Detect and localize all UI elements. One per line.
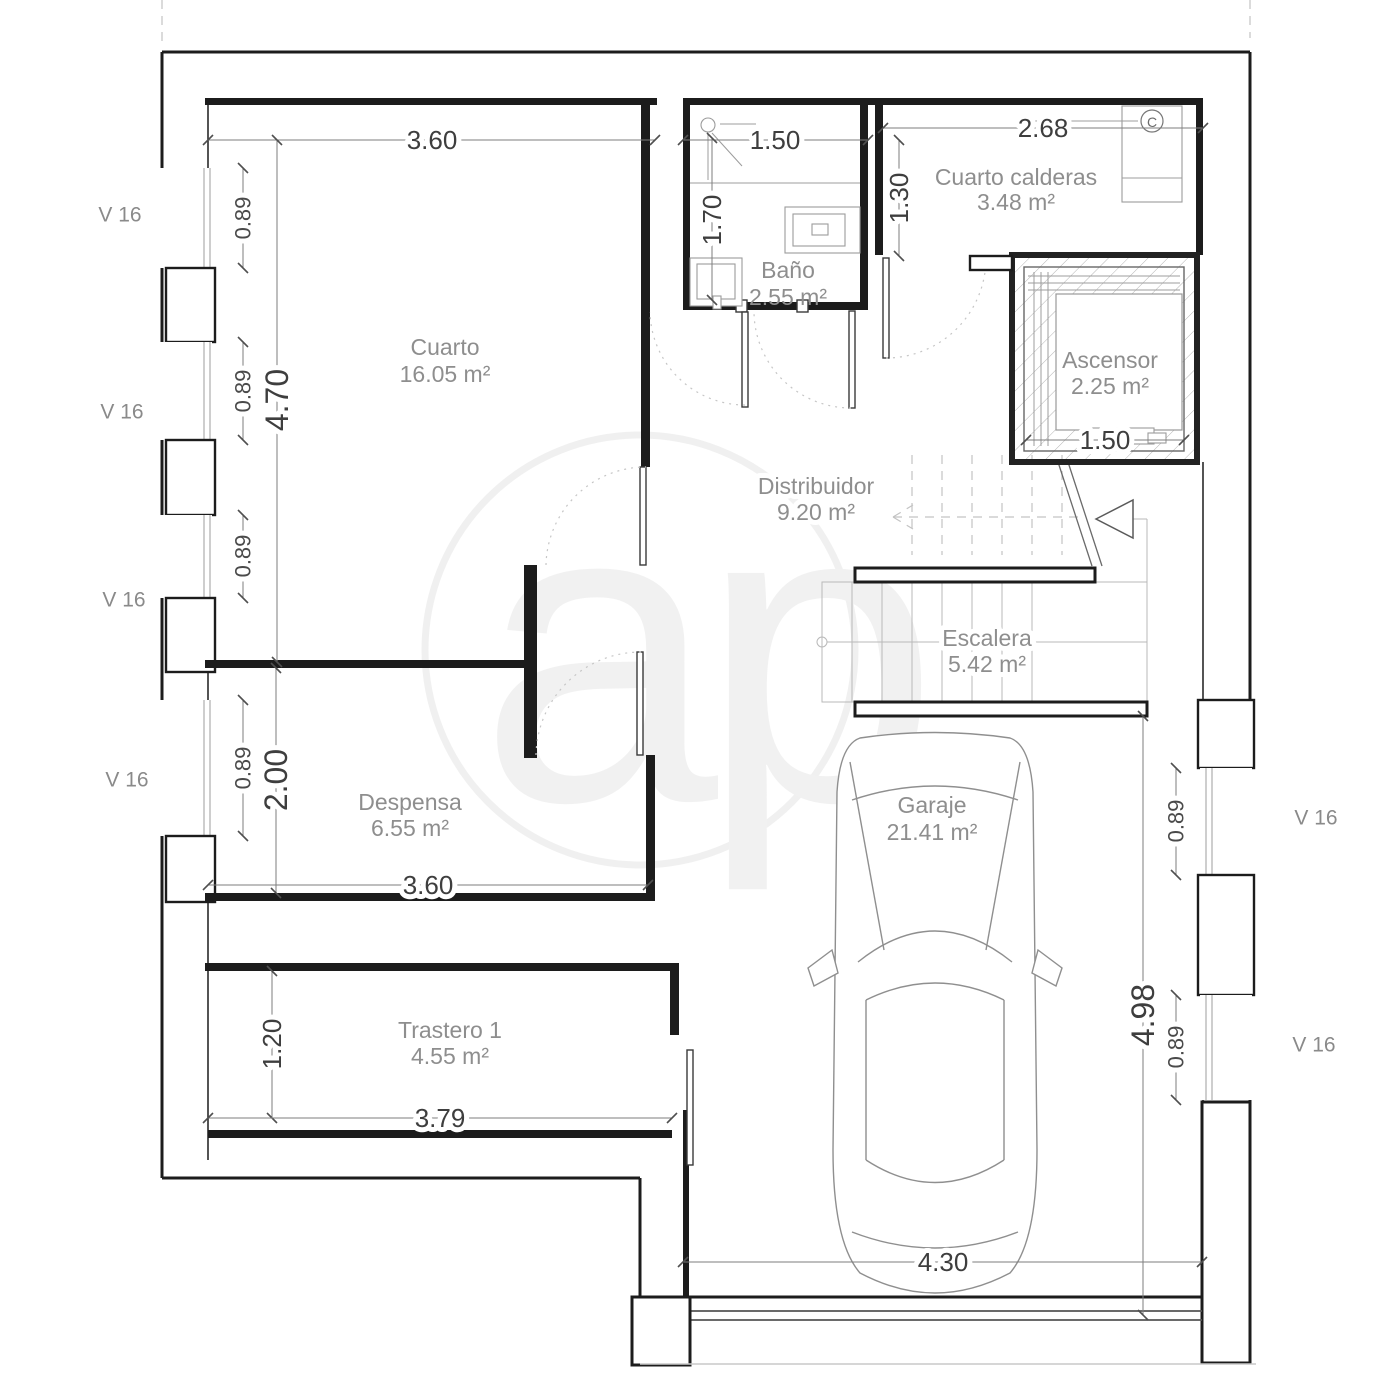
window-opening xyxy=(160,342,212,440)
wall-pier xyxy=(166,440,215,515)
wall-cuarto-despensa xyxy=(205,660,530,668)
dim-label: 4.30 xyxy=(918,1247,969,1277)
room-name-cuarto: Cuarto xyxy=(410,334,479,360)
wall-pier xyxy=(166,268,215,342)
wall-calderas-left xyxy=(875,98,883,255)
door-swing-hall xyxy=(754,311,851,408)
dim-label: 0.89 xyxy=(1164,1026,1189,1069)
door-leaf-hall xyxy=(849,311,855,408)
wall-trastero-step xyxy=(670,963,679,1035)
room-name-escalera: Escalera xyxy=(942,625,1032,651)
window-label: V 16 xyxy=(100,401,143,424)
room-area-calderas: 3.48 m² xyxy=(977,189,1055,215)
room-name-distribuidor: Distribuidor xyxy=(758,473,875,499)
wall-bano-right xyxy=(860,98,868,310)
wall-stub-elevator xyxy=(970,256,1012,270)
dim-label: 0.89 xyxy=(1164,800,1189,843)
stair-landing-wall-top xyxy=(855,568,1095,582)
floor-plan-page: ap xyxy=(0,0,1400,1400)
dim-label: 4.98 xyxy=(1125,984,1161,1046)
window-opening xyxy=(160,700,212,836)
room-name-garaje: Garaje xyxy=(897,792,966,818)
wall-pier xyxy=(166,836,215,902)
room-area-trastero: 4.55 m² xyxy=(411,1043,489,1069)
stair-direction-arrow xyxy=(1096,500,1133,538)
room-area-garaje: 21.41 m² xyxy=(887,819,978,845)
stair-landing-wall-bottom xyxy=(855,702,1147,716)
door-leaf-calderas xyxy=(883,258,889,358)
window-label: V 16 xyxy=(1294,807,1337,830)
window-label: V 16 xyxy=(1292,1034,1335,1057)
door-swing-bano xyxy=(650,312,745,405)
right-wall-windows xyxy=(1198,700,1254,1363)
dim-label: 1.30 xyxy=(884,173,914,224)
window-opening xyxy=(1200,768,1252,875)
dim-label: 2.68 xyxy=(1018,113,1069,143)
room-name-trastero: Trastero 1 xyxy=(398,1017,502,1043)
room-name-ascensor: Ascensor xyxy=(1062,347,1158,373)
stair-section-cut xyxy=(1058,462,1092,566)
sink-icon xyxy=(785,207,860,253)
dim-label: 0.89 xyxy=(231,747,256,790)
window-label: V 16 xyxy=(102,589,145,612)
window-opening xyxy=(1200,995,1252,1100)
wall-bano-left xyxy=(683,98,690,310)
wall-cuarto-right xyxy=(641,98,650,467)
room-area-despensa: 6.55 m² xyxy=(371,815,449,841)
room-area-ascensor: 2.25 m² xyxy=(1071,373,1149,399)
wall-pier xyxy=(1198,700,1254,768)
door-leaf-bano xyxy=(742,312,748,407)
dim-label: 3.79 xyxy=(415,1103,466,1133)
dim-label: 4.70 xyxy=(259,369,295,431)
room-name-despensa: Despensa xyxy=(358,789,462,815)
room-area-bano: 2.55 m² xyxy=(749,284,827,310)
stair-section-cut xyxy=(1068,462,1102,566)
door-swing-calderas xyxy=(886,258,986,358)
dim-label: 1.50 xyxy=(1080,425,1131,455)
wall-pier-corner xyxy=(1202,1102,1250,1363)
window-label: V 16 xyxy=(98,204,141,227)
wall-pier xyxy=(1198,875,1254,995)
stair-upper-flight-dashed xyxy=(893,455,1085,555)
wall-calderas-right xyxy=(1196,98,1203,255)
wall-top-right-rooms xyxy=(683,98,1203,105)
window-opening xyxy=(160,515,212,598)
dim-label: 1.70 xyxy=(697,195,727,246)
room-area-escalera: 5.42 m² xyxy=(948,651,1026,677)
toilet-icon xyxy=(690,258,742,309)
garage-door-pier-left xyxy=(632,1297,690,1365)
door-leaf-despensa xyxy=(637,652,643,755)
elevator-machine xyxy=(1148,433,1166,443)
window-label: V 16 xyxy=(105,769,148,792)
dim-label: 1.50 xyxy=(750,125,801,155)
door-leaf-trastero xyxy=(687,1050,693,1165)
room-area-distribuidor: 9.20 m² xyxy=(777,499,855,525)
dim-label: 0.89 xyxy=(231,197,256,240)
wall-trastero-top xyxy=(205,963,678,971)
dim-label: 2.00 xyxy=(258,749,294,811)
room-name-calderas: Cuarto calderas xyxy=(935,164,1097,190)
dim-label: 3.60 xyxy=(403,870,454,900)
floor-plan: ap xyxy=(0,0,1400,1400)
car-mirror-right xyxy=(1032,950,1062,986)
door-leaf-cuarto xyxy=(640,467,646,565)
wall-cuarto-top xyxy=(205,98,657,105)
dim-label: 3.60 xyxy=(407,125,458,155)
garage-door xyxy=(632,1297,1256,1365)
window-opening xyxy=(160,168,212,268)
dim-label: 0.89 xyxy=(231,370,256,413)
dim-label: 0.89 xyxy=(231,535,256,578)
car-mirror-left xyxy=(808,950,838,986)
room-area-cuarto: 16.05 m² xyxy=(400,361,491,387)
room-name-bano: Baño xyxy=(761,257,815,283)
dim-label: 1.20 xyxy=(257,1019,287,1070)
wall-despensa-right xyxy=(646,755,655,901)
left-wall-windows xyxy=(160,168,215,902)
